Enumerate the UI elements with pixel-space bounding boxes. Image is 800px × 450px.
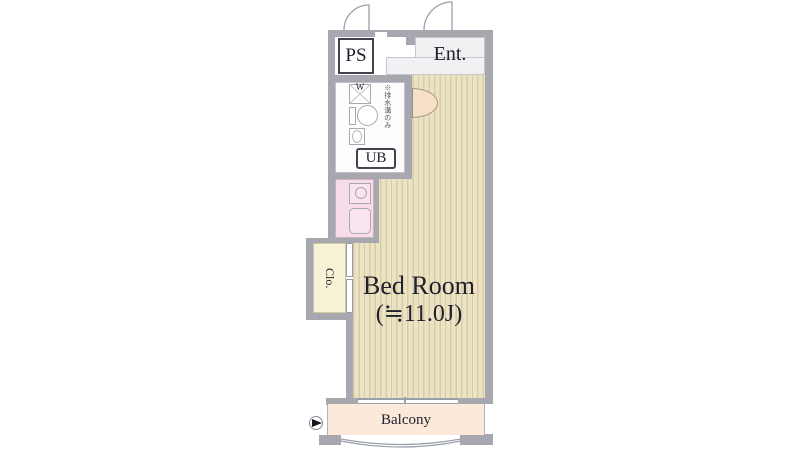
closet-label: Clo. bbox=[322, 268, 337, 288]
floorplan-canvas: Ent. PS W ※排水溝のみ UB Clo. Bed Room (≒11.0… bbox=[0, 0, 800, 450]
unit-bath-label: UB bbox=[366, 150, 387, 167]
bedroom-size: (≒11.0J) bbox=[353, 301, 485, 329]
ps-box: PS bbox=[338, 38, 374, 74]
bedroom-label-block: Bed Room (≒11.0J) bbox=[353, 271, 485, 328]
wall-balcony-stub-left bbox=[319, 435, 341, 445]
toilet-icon bbox=[349, 107, 356, 125]
balcony-label: Balcony bbox=[327, 412, 485, 429]
wall-left bbox=[328, 37, 335, 243]
kitchen-burner-ring-icon bbox=[355, 187, 367, 199]
wall-gap bbox=[375, 32, 387, 37]
closet-sliding-door-bottom bbox=[346, 279, 353, 313]
ps-label: PS bbox=[345, 45, 366, 67]
kitchen-sink-icon bbox=[349, 208, 371, 234]
toilet-bowl-icon bbox=[357, 105, 378, 126]
bedroom-name: Bed Room bbox=[353, 271, 485, 301]
entrance-label: Ent. bbox=[416, 43, 484, 66]
wall-closet-left bbox=[306, 243, 313, 320]
washer-note: ※排水溝のみ bbox=[383, 84, 391, 132]
wall-balcony-stub-right bbox=[460, 434, 493, 445]
washer-mark: W bbox=[349, 82, 371, 92]
north-arrow-icon bbox=[312, 419, 322, 427]
wall-lower-left bbox=[346, 320, 353, 398]
wall-bath-top bbox=[328, 75, 412, 82]
wall-right bbox=[485, 37, 493, 402]
unit-bath-box: UB bbox=[356, 148, 396, 169]
closet-sliding-door-top bbox=[346, 243, 353, 277]
wall-closet-bottom bbox=[306, 313, 353, 320]
wall-kitchen-right bbox=[374, 179, 379, 243]
wall-bath-right bbox=[405, 82, 412, 179]
closet-area: Clo. bbox=[313, 243, 346, 313]
bath-sink-basin-icon bbox=[352, 130, 362, 143]
